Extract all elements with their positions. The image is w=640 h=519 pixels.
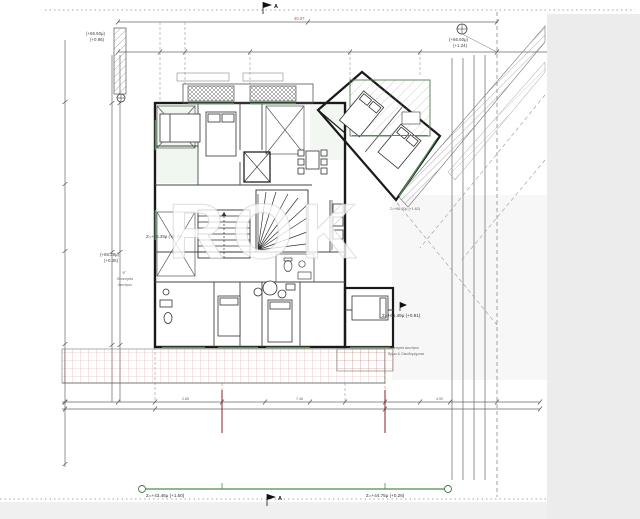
elevation-label-bottom-left: Σ=+43.46μ (+1.50) — [146, 493, 185, 498]
floor-plan-page: 2.85 7.45 4.90 — [0, 0, 640, 519]
dim-value: 4.90 — [436, 397, 443, 401]
elevation-label-wing: Σ=+66.20μ (+1.62) — [390, 207, 420, 211]
note-line: ΥΓ — [122, 271, 126, 275]
elevation-label-left-1: (+65.39μ) — [100, 252, 120, 257]
dim-value: 2.85 — [182, 397, 189, 401]
note-line: Άρμα & Οικοδομήματα — [388, 352, 424, 356]
bottom-margin — [0, 502, 547, 519]
neighbor-wall-strip — [114, 28, 126, 102]
section-marker-label: A — [278, 496, 282, 502]
watermark-text: ROK — [168, 187, 365, 275]
floor-plan-svg: 2.85 7.45 4.90 — [0, 0, 640, 519]
elevation-label-top-left-2: (+0.96) — [90, 37, 105, 42]
elevation-label-right: Σ=+65.49μ (+0.91) — [382, 313, 421, 318]
right-margin — [547, 14, 640, 519]
dim-value: 7.45 — [296, 397, 303, 401]
note-line: Ιδιοκτησία Ακινήτου — [388, 346, 419, 350]
note-line: Ιδιοκτησία — [117, 277, 133, 281]
terrace — [62, 349, 393, 383]
elevation-label-bottom-right: Σ=+44.75μ (+0.26) — [366, 493, 405, 498]
elevation-label-top-right-1: (+66.50μ) — [449, 37, 469, 42]
elevation-label-left-2: (+0.35) — [104, 258, 119, 263]
section-marker-label: A — [274, 4, 278, 10]
elevation-label-top-left-1: (+65.50μ) — [86, 31, 106, 36]
top-dimension-label: 40.07 — [294, 16, 305, 21]
note-line: Ακινήτου — [118, 283, 132, 287]
elevation-label-top-right-2: (+1.24) — [453, 43, 468, 48]
